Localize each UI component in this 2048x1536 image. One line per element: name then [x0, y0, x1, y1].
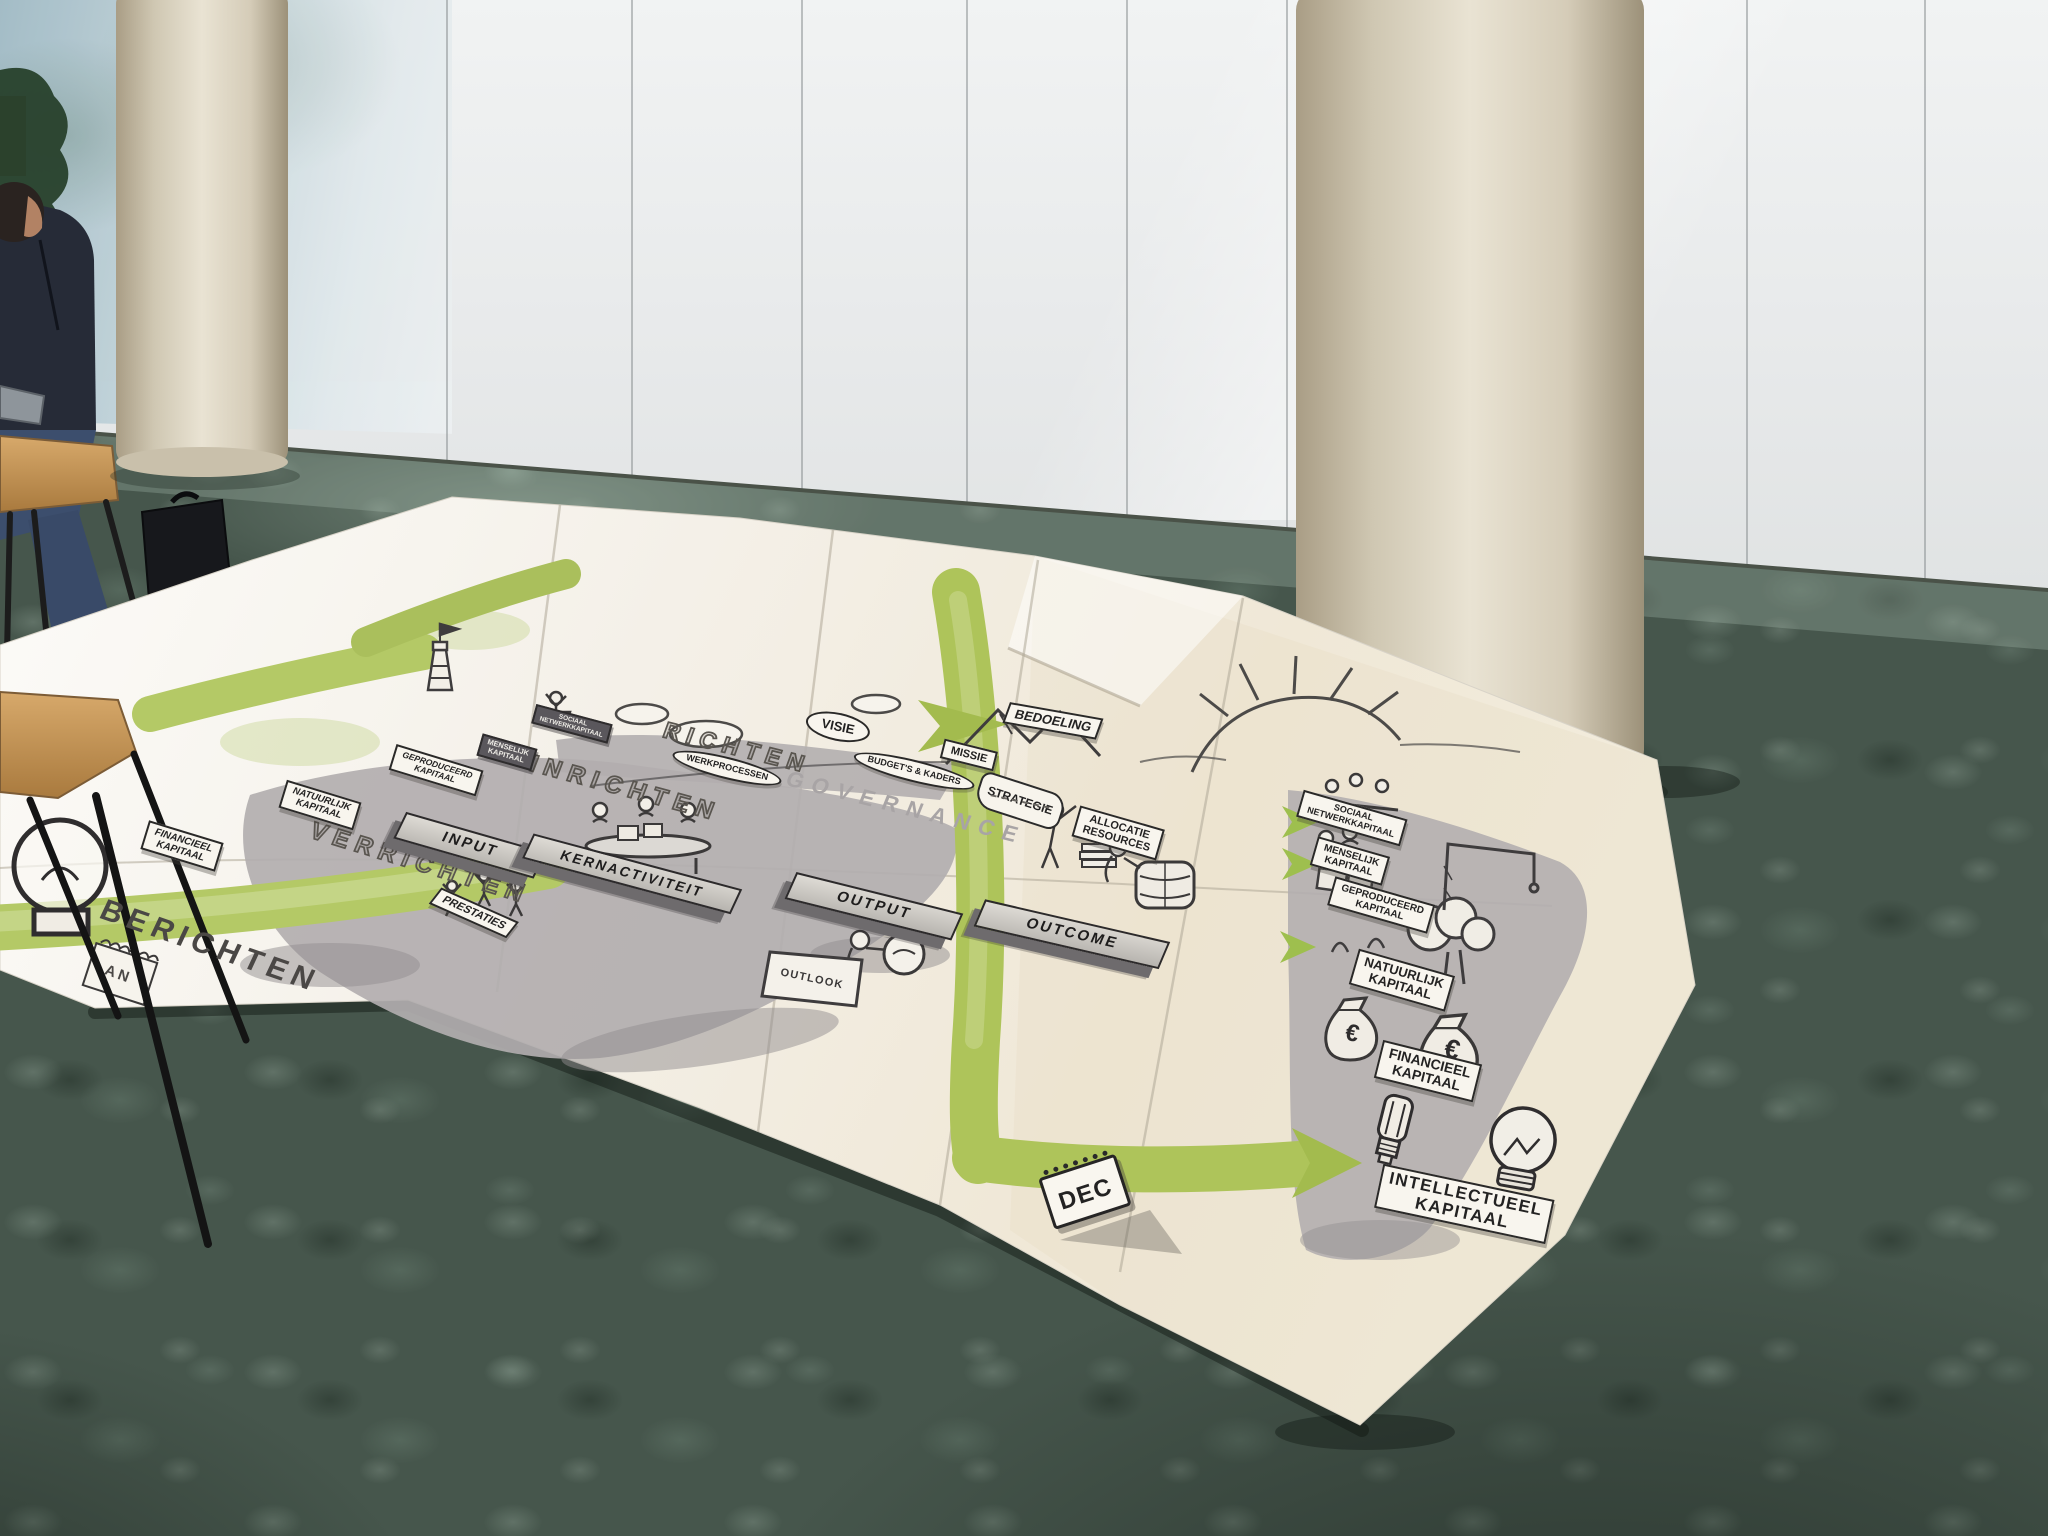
scene: BEDOELING VISIE MISSIE BUDGET'S & KADERS…	[0, 0, 2048, 1536]
scenery-graphics	[0, 0, 2048, 1536]
pillar-left	[110, 0, 300, 490]
